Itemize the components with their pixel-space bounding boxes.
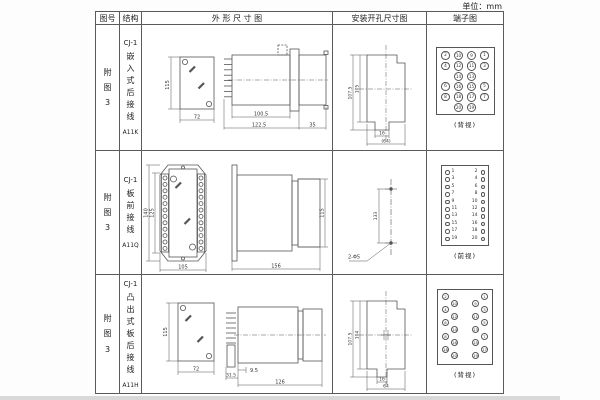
terminal-circle: 9 <box>467 51 477 61</box>
terminal-number: 16 <box>465 221 478 226</box>
terminal-number: 13 <box>452 213 465 218</box>
dim-plate-width: 105 <box>178 265 188 271</box>
terminal-circle: 4 <box>441 62 450 71</box>
header-outline: 外 形 尺 寸 图 <box>142 12 332 24</box>
mounting-cell-row1: 107.5 105 16 (64) <box>333 25 426 150</box>
outline-cell-row2: 140 125 105 156 115 <box>142 151 332 274</box>
structure-type: 板前接线 <box>125 188 136 236</box>
dim-depth: 156 <box>271 264 281 270</box>
model-label: CJ-1 <box>124 280 138 288</box>
figure-no: 附图3 <box>102 311 114 357</box>
terminal-circle <box>445 177 450 182</box>
terminal-circle: 15 <box>467 82 477 92</box>
terminal-circle: 14 <box>451 326 458 333</box>
figure-cell-row2: 附图3 <box>96 151 119 274</box>
dim-inner-height: 125 <box>150 208 156 218</box>
dim-front-width: 72 <box>193 367 199 373</box>
side-view <box>226 307 326 387</box>
terminal-circle: 4 <box>442 306 449 313</box>
dim-inner-height: 104 <box>355 331 361 340</box>
side-view <box>232 165 328 271</box>
terminal-circle <box>481 192 486 197</box>
front-view <box>168 57 214 123</box>
outline-cell-row3: 115 72 9.5 31.5 <box>142 275 332 393</box>
terminal-number: 19 <box>452 236 465 241</box>
terminal-circle: 12 <box>454 61 464 71</box>
terminal-box: 2104126148161820193115137151719 <box>437 289 493 365</box>
terminal-number: 7 <box>452 191 465 196</box>
terminal-circle: 7 <box>480 93 489 102</box>
dim-depth: 100.5 <box>254 112 268 118</box>
terminal-circle: 1 <box>480 51 489 60</box>
structure-cell-row2: CJ-1 板前接线 A11Q <box>120 151 141 274</box>
terminal-circle: 5 <box>481 319 488 326</box>
terminal-circle <box>481 185 486 190</box>
terminal-circle: 1 <box>481 293 488 300</box>
structure-type: 凸出式板后接线 <box>125 292 136 376</box>
terminal-circle: 13 <box>467 72 477 82</box>
terminal-circle: 19 <box>472 352 479 359</box>
terminal-circle <box>481 177 486 182</box>
type-code: A11K <box>123 129 139 136</box>
terminal-circle <box>445 229 450 234</box>
terminal-circle: 17 <box>481 346 488 353</box>
figure-no: 附图3 <box>102 190 114 236</box>
terminal-circle <box>481 214 486 219</box>
terminal-box: 1234567891011121314151617181920 <box>441 165 489 246</box>
terminal-number: 9 <box>452 199 465 204</box>
structure-cell-row1: CJ-1 嵌入式后接线 A11K <box>120 25 141 150</box>
header-figure: 图号 <box>96 12 119 24</box>
terminal-circle: 19 <box>467 103 477 113</box>
terminal-circle: 11 <box>472 313 479 320</box>
type-code: A11Q <box>122 242 138 249</box>
terminal-circle: 20 <box>451 352 458 359</box>
holes-callout: 2-Φ5 <box>348 255 360 261</box>
type-code: A11H <box>122 382 138 389</box>
terminal-circle <box>445 170 450 175</box>
terminal-circle: 17 <box>467 92 477 102</box>
terminal-box: 2109141211314136161558181772019 <box>436 47 495 115</box>
terminal-number: 8 <box>465 191 478 196</box>
terminal-cell-row1: 2109141211314136161558181772019 (背视) <box>427 25 503 150</box>
dim-inner-height: 105 <box>355 85 361 94</box>
terminal-number: 11 <box>452 206 465 211</box>
figure-no: 附图3 <box>102 65 114 111</box>
outline-drawing-a11h: 115 72 9.5 31.5 <box>142 275 332 393</box>
structure-type: 嵌入式后接线 <box>125 51 136 123</box>
terminal-view-label: (背视) <box>454 119 476 129</box>
dim-hole-spacing: 133 <box>373 212 379 221</box>
header-mounting: 安装开孔尺寸图 <box>333 12 426 24</box>
terminal-number: 4 <box>465 176 478 181</box>
terminal-number: 6 <box>465 184 478 189</box>
side-view <box>224 45 328 130</box>
terminal-circle: 5 <box>480 82 489 91</box>
terminal-cell-row2: 1234567891011121314151617181920 (前视) <box>427 151 503 274</box>
terminal-circle: 14 <box>454 72 464 82</box>
terminal-circle: 10 <box>451 300 458 307</box>
terminal-circle: 3 <box>480 62 489 71</box>
terminal-circle: 12 <box>451 313 458 320</box>
outline-drawing-a11k: 115 72 <box>142 25 332 150</box>
terminal-circle: 9 <box>472 300 479 307</box>
terminal-circle: 6 <box>442 319 449 326</box>
terminal-circle: 13 <box>472 326 479 333</box>
terminal-number: 17 <box>452 228 465 233</box>
terminal-circle <box>481 229 486 234</box>
terminal-circle <box>481 237 486 242</box>
dim-depth: 126 <box>275 380 285 386</box>
dim-total-depth: 122.5 <box>252 123 266 129</box>
terminal-number: 12 <box>465 206 478 211</box>
terminal-circle <box>445 207 450 212</box>
terminal-view-label: (前视) <box>454 250 476 260</box>
terminal-circle: 7 <box>481 333 488 340</box>
terminal-circle <box>445 214 450 219</box>
terminal-number: 20 <box>465 236 478 241</box>
dim-opening-width: 64 <box>383 384 389 390</box>
hole-layout <box>349 179 397 261</box>
header-structure: 结构 <box>120 12 141 24</box>
header-terminal: 端子图 <box>427 12 503 24</box>
terminal-view-label: (背视) <box>454 369 476 379</box>
mounting-drawing-a11k: 107.5 105 16 (64) <box>333 25 426 150</box>
dim-body-height: 115 <box>320 208 326 218</box>
terminal-circle <box>445 192 450 197</box>
terminal-circle: 11 <box>467 61 477 71</box>
terminal-number: 3 <box>452 176 465 181</box>
terminal-circle <box>481 200 486 205</box>
terminal-circle <box>481 222 486 227</box>
terminal-circle: 8 <box>442 333 449 340</box>
dim-base: 31.5 <box>226 373 236 379</box>
terminal-circle: 18 <box>454 92 464 102</box>
terminal-circle: 15 <box>472 339 479 346</box>
figure-cell-row3: 附图3 <box>96 275 119 393</box>
terminal-circle: 20 <box>454 103 464 113</box>
drawing-table: 图号 结构 外 形 尺 寸 图 安装开孔尺寸图 端子图 附图3 CJ-1 嵌入式… <box>95 11 504 394</box>
terminal-number: 1 <box>452 169 465 174</box>
terminal-cell-row3: 2104126148161820193115137151719 (背视) <box>427 275 503 393</box>
terminal-circle: 18 <box>442 346 449 353</box>
terminal-circle: 6 <box>441 82 450 91</box>
panel-cutout <box>350 291 413 391</box>
model-label: CJ-1 <box>124 176 138 184</box>
mounting-cell-row2: 133 2-Φ5 <box>333 151 426 274</box>
terminal-circle: 2 <box>441 51 450 60</box>
dim-opening-width: (64) <box>381 139 390 145</box>
model-label: CJ-1 <box>124 39 138 47</box>
outline-drawing-a11q: 140 125 105 156 115 <box>142 151 332 274</box>
dim-stud: 9.5 <box>250 368 258 374</box>
page-edge <box>0 396 560 400</box>
terminal-circle <box>481 207 486 212</box>
front-view <box>166 303 214 375</box>
dim-outer-height: 107.5 <box>348 86 354 99</box>
dim-front-height: 115 <box>163 327 169 337</box>
structure-cell-row3: CJ-1 凸出式板后接线 A11H <box>120 275 141 393</box>
mounting-drawing-a11q: 133 2-Φ5 <box>333 151 426 274</box>
terminal-circle: 16 <box>454 82 464 92</box>
terminal-circle: 8 <box>441 93 450 102</box>
terminal-circle: 2 <box>442 293 449 300</box>
terminal-number: 15 <box>452 221 465 226</box>
terminal-circle <box>445 222 450 227</box>
figure-cell-row1: 附图3 <box>96 25 119 150</box>
terminal-number: 2 <box>465 169 478 174</box>
terminal-circle <box>445 185 450 190</box>
terminal-number: 10 <box>465 199 478 204</box>
terminal-circle: 3 <box>481 306 488 313</box>
terminal-number: 18 <box>465 228 478 233</box>
terminal-circle <box>481 170 486 175</box>
terminal-circle <box>445 200 450 205</box>
outline-cell-row1: 115 72 <box>142 25 332 150</box>
terminal-number: 5 <box>452 184 465 189</box>
terminal-circle <box>445 237 450 242</box>
dim-front-height: 115 <box>165 80 171 90</box>
dim-flange: 35 <box>309 123 315 129</box>
dim-front-width: 72 <box>194 115 200 121</box>
dim-outer-height: 107.5 <box>348 332 354 345</box>
mounting-drawing-a11h: 107.5 104 16 64 <box>333 275 426 393</box>
mounting-cell-row3: 107.5 104 16 64 <box>333 275 426 393</box>
terminal-circle: 10 <box>454 51 464 61</box>
terminal-circle: 16 <box>451 339 458 346</box>
terminal-number: 14 <box>465 213 478 218</box>
dim-slot-width: 16 <box>379 131 385 137</box>
dim-slot-width: 16 <box>379 377 385 383</box>
